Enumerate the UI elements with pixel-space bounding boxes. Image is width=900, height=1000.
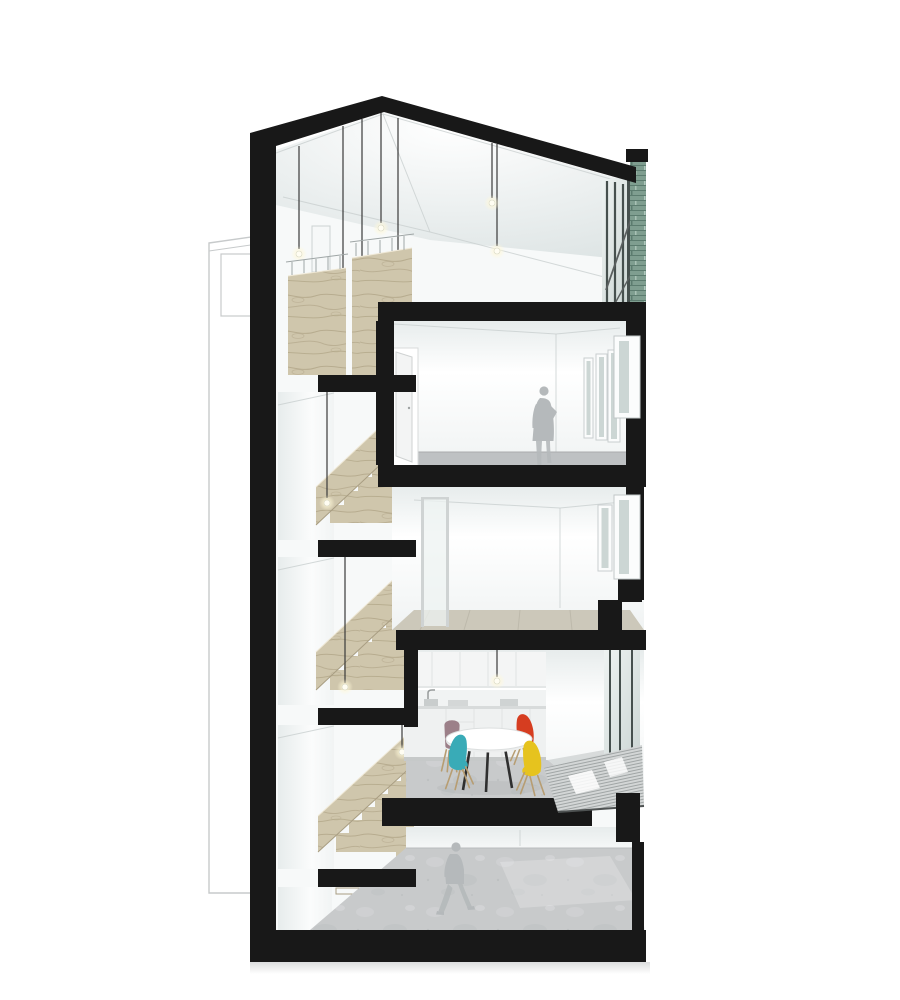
floor-slab [378,302,646,321]
bedroom-door [392,348,418,466]
empty-room-window [598,505,612,571]
roof-right-cap [626,149,648,162]
kitchen-glazing [604,650,640,758]
bedroom-floor-edge [392,452,644,467]
bulb-icon [373,220,389,236]
section-drawing [0,0,900,1000]
bulb-icon [489,243,505,259]
stair-landing-slab [318,375,416,392]
bulb-icon [484,195,500,211]
stair-landing-slab [318,540,416,557]
empty-room-window-bay [614,495,640,579]
stair-landing-slab [318,708,418,725]
floor-slab [378,465,646,487]
bulb-icon [489,673,505,689]
architectural-section-canvas [0,0,900,1000]
right-wall-pier [616,793,640,842]
floor-slab [396,630,646,650]
foundation-slab [250,930,646,962]
stair-cut-wall [376,321,394,465]
bedroom-window-bay [614,336,640,418]
right-step-slab [598,600,622,630]
left-party-wall [250,146,276,962]
kitchen-counter [404,706,546,709]
bulb-icon [319,495,335,511]
right-wall-pier [618,577,642,602]
stair-landing-slab [318,869,416,887]
right-wall-segment [632,842,644,932]
ground-shadow [250,962,650,974]
bulb-icon [337,679,353,695]
glass-partition [421,497,449,627]
studio-back-door [312,226,330,272]
bedroom [392,321,644,467]
